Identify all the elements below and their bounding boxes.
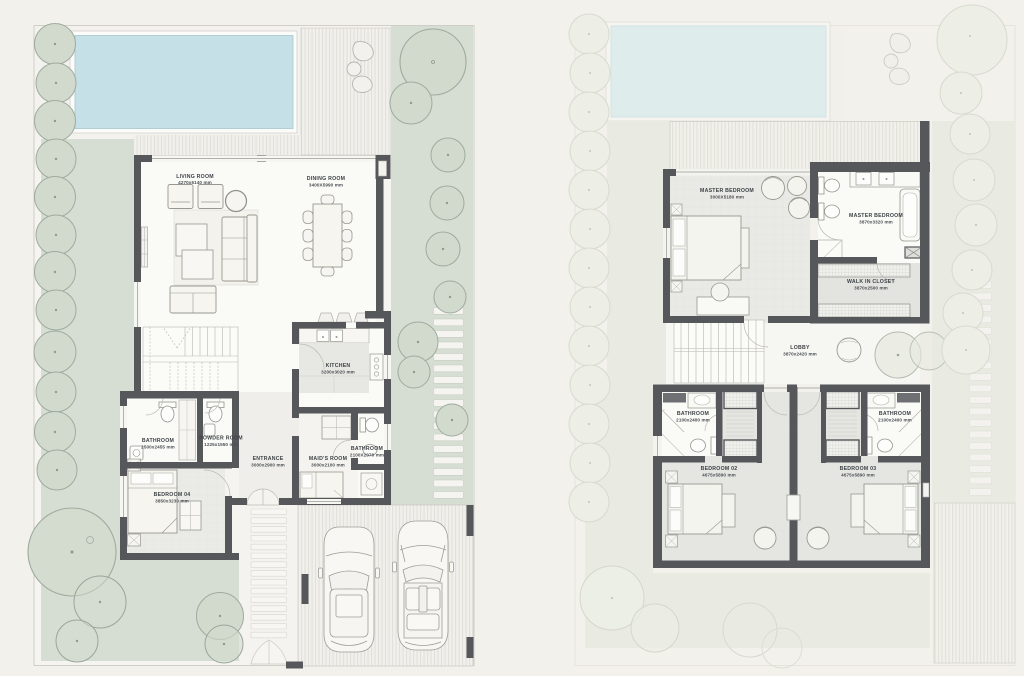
svg-text:3870x2420 mm: 3870x2420 mm [783,352,817,357]
svg-text:1225x1550 mm: 1225x1550 mm [204,442,238,447]
svg-text:MASTER BEDROOM: MASTER BEDROOM [849,213,903,219]
svg-text:BEDROOM 03: BEDROOM 03 [840,466,877,472]
svg-text:BEDROOM 02: BEDROOM 02 [701,466,738,472]
svg-text:3870x3320 mm: 3870x3320 mm [859,220,893,225]
svg-text:DINING ROOM: DINING ROOM [307,176,346,182]
svg-text:2100x2400 mm: 2100x2400 mm [676,418,710,423]
svg-text:4675x5890 mm: 4675x5890 mm [841,473,875,478]
svg-text:3200x3020 mm: 3200x3020 mm [321,370,355,375]
svg-text:4270x6140 mm: 4270x6140 mm [178,180,212,185]
svg-text:BEDROOM 04: BEDROOM 04 [154,492,191,498]
svg-text:BATHROOM: BATHROOM [142,438,174,444]
svg-text:POWDER ROOM: POWDER ROOM [199,436,243,442]
svg-text:3000x2900 mm: 3000x2900 mm [251,463,285,468]
svg-text:BATHROOM: BATHROOM [879,411,911,417]
svg-text:3870x2500 mm: 3870x2500 mm [854,286,888,291]
svg-text:2500x2455 mm: 2500x2455 mm [141,445,175,450]
svg-text:3850x3230 mm: 3850x3230 mm [155,499,189,504]
svg-text:3400X5990 mm: 3400X5990 mm [309,183,343,188]
svg-text:3000x2100 mm: 3000x2100 mm [311,463,345,468]
svg-text:BATHROOM: BATHROOM [677,411,709,417]
svg-text:2100x2400 mm: 2100x2400 mm [878,418,912,423]
svg-text:MAID'S ROOM: MAID'S ROOM [309,456,347,462]
svg-text:KITCHEN: KITCHEN [326,363,351,369]
svg-text:MASTER BEDROOM: MASTER BEDROOM [700,188,754,194]
svg-text:BATHROOM: BATHROOM [351,446,383,452]
svg-text:3000X5180 mm: 3000X5180 mm [710,195,744,200]
svg-text:4675x5890 mm: 4675x5890 mm [702,473,736,478]
svg-text:2100X2070 mm: 2100X2070 mm [350,453,384,458]
svg-text:WALK IN CLOSET: WALK IN CLOSET [847,279,895,285]
svg-text:ENTRANCE: ENTRANCE [253,456,284,462]
svg-text:LOBBY: LOBBY [790,345,810,351]
